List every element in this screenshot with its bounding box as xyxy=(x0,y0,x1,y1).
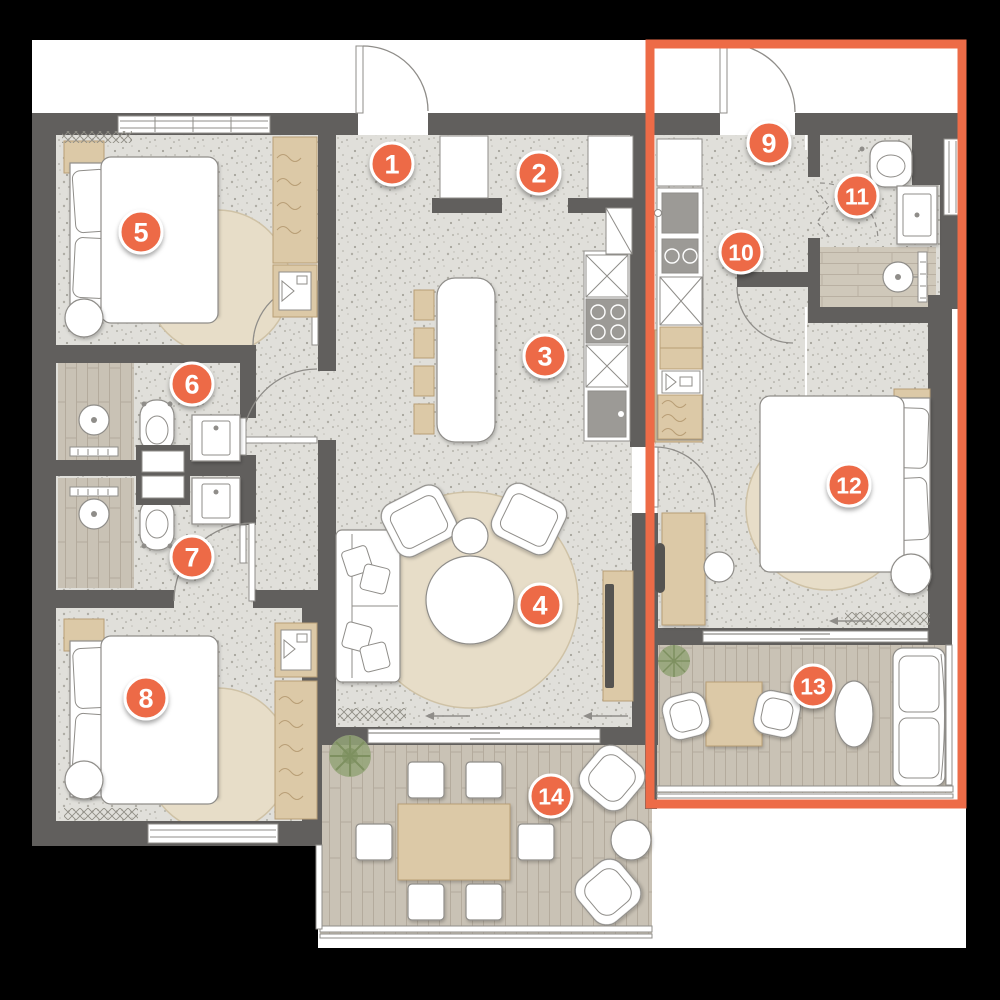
faucet-dot xyxy=(214,426,219,431)
dining-chair xyxy=(518,824,554,860)
lounge-sofa-13 xyxy=(893,648,945,786)
room-marker-4[interactable]: 4 xyxy=(519,584,561,626)
radiator-hatch xyxy=(845,612,930,625)
dining-chair xyxy=(466,762,502,798)
desk-bedroom-12 xyxy=(662,513,705,625)
wall xyxy=(432,198,502,213)
door-leaf-bath-7 xyxy=(240,525,246,563)
dining-chair xyxy=(408,762,444,798)
door-leaf-bath-6 xyxy=(240,418,246,455)
toilet-dot xyxy=(142,402,147,407)
vanity-bath-7 xyxy=(192,478,240,524)
shower-head-dot xyxy=(91,417,97,423)
room-marker-11[interactable]: 11 xyxy=(836,175,878,217)
door-leaf-corridor xyxy=(243,437,317,443)
wall xyxy=(648,113,720,135)
door-leaf-bedroom-8 xyxy=(249,523,255,601)
toilet-dot xyxy=(142,544,147,549)
floor-plan-screenshot: 1234567891011121314 xyxy=(0,0,1000,1000)
shower-drain xyxy=(918,252,927,302)
side-table-balcony-14 xyxy=(611,820,651,860)
dining-chair xyxy=(408,884,444,920)
wall xyxy=(188,460,256,476)
marker-number: 13 xyxy=(800,673,826,699)
marker-number: 7 xyxy=(184,543,199,573)
sliding-door-bedroom-12 xyxy=(703,631,928,642)
fridge xyxy=(657,139,702,186)
toilet-bath-7 xyxy=(140,498,174,550)
side-table-living xyxy=(452,518,488,554)
door-leaf-entry-9 xyxy=(720,46,727,113)
wall xyxy=(428,113,650,135)
faucet-dot xyxy=(915,213,920,218)
railing-balcony-13 xyxy=(657,794,953,798)
stool xyxy=(414,290,434,320)
sofa-pillow xyxy=(359,641,391,673)
dresser-icon xyxy=(297,276,307,284)
bistro-table-13 xyxy=(706,682,762,746)
wall xyxy=(253,590,318,608)
sink-unit xyxy=(662,193,698,233)
room-marker-2[interactable]: 2 xyxy=(518,152,560,194)
radiator-hatch xyxy=(338,708,406,721)
room-marker-3[interactable]: 3 xyxy=(524,335,566,377)
stool xyxy=(414,366,434,396)
ottoman-balcony-13 xyxy=(835,681,873,747)
side-table-bedroom-12 xyxy=(891,554,931,594)
floor-plan-canvas: 1234567891011121314 xyxy=(0,0,1000,1000)
window-bedroom-8 xyxy=(148,824,278,843)
wall xyxy=(928,295,952,645)
dining-table-14 xyxy=(398,804,510,880)
marker-number: 4 xyxy=(532,591,547,621)
marker-number: 12 xyxy=(836,472,862,498)
marker-number: 11 xyxy=(845,183,870,209)
side-table-bedroom-8 xyxy=(65,761,103,799)
railing-balcony-14 xyxy=(320,926,652,932)
shower-drain xyxy=(70,487,118,496)
oven-handle xyxy=(618,411,624,417)
marker-number: 1 xyxy=(384,150,399,180)
railing-balcony-13 xyxy=(657,786,953,792)
toilet-dot xyxy=(168,402,173,407)
wall xyxy=(56,460,136,476)
wardrobe-bedroom-8 xyxy=(275,681,317,819)
room-marker-6[interactable]: 6 xyxy=(171,363,213,405)
marker-number: 5 xyxy=(133,218,148,248)
marker-number: 10 xyxy=(728,239,754,265)
tv-icon xyxy=(605,584,614,688)
room-marker-1[interactable]: 1 xyxy=(371,143,413,185)
side-table-bedroom-5 xyxy=(65,299,103,337)
room-marker-10[interactable]: 10 xyxy=(720,231,762,273)
marker-number: 9 xyxy=(761,129,776,159)
shower-head-dot xyxy=(895,274,901,280)
marker-number: 14 xyxy=(538,783,564,809)
wall xyxy=(56,590,174,608)
desk-chair-12 xyxy=(655,543,665,593)
door-leaf-entry-1 xyxy=(356,46,363,113)
sliding-door-living xyxy=(368,729,600,743)
toilet-dot xyxy=(860,147,865,152)
kitchen-island xyxy=(437,278,495,442)
railing-balcony-13-side xyxy=(946,645,952,785)
radiator-hatch xyxy=(62,131,132,143)
room-marker-9[interactable]: 9 xyxy=(748,122,790,164)
wall xyxy=(737,272,812,287)
wall xyxy=(808,307,940,323)
hall-closet xyxy=(440,136,488,198)
sofa-pillow xyxy=(359,563,391,595)
faucet xyxy=(655,210,662,217)
coffee-table-living xyxy=(426,556,514,644)
toilet-bath-11 xyxy=(870,141,912,187)
railing-balcony-14 xyxy=(320,934,652,938)
room-marker-13[interactable]: 13 xyxy=(792,665,834,707)
niche-shelf xyxy=(142,451,184,472)
room-marker-7[interactable]: 7 xyxy=(171,536,213,578)
wall xyxy=(240,363,256,418)
dining-chair xyxy=(356,824,392,860)
dresser-icon xyxy=(297,634,307,642)
railing-balcony-14-side xyxy=(316,845,322,929)
wall xyxy=(912,135,940,185)
plant-core xyxy=(342,748,358,764)
wall xyxy=(56,345,256,363)
shower-drain xyxy=(70,447,118,456)
dining-chair xyxy=(466,884,502,920)
wall xyxy=(32,113,56,846)
marker-number: 3 xyxy=(537,342,552,372)
wall xyxy=(795,113,966,135)
marker-number: 2 xyxy=(531,159,546,189)
shower-head-dot xyxy=(91,511,97,517)
room-marker-8[interactable]: 8 xyxy=(125,677,167,719)
faucet-dot xyxy=(214,490,219,495)
room-marker-5[interactable]: 5 xyxy=(120,211,162,253)
room-marker-14[interactable]: 14 xyxy=(530,775,572,817)
window-bedroom-5 xyxy=(118,116,270,133)
wall xyxy=(808,132,820,177)
niche-shelf xyxy=(142,476,184,498)
room-marker-12[interactable]: 12 xyxy=(828,464,870,506)
desk-side-table-12 xyxy=(704,552,734,582)
wall xyxy=(318,135,336,371)
cooktop-2-burner xyxy=(662,239,698,273)
appliance-icon xyxy=(680,377,692,386)
radiator-hatch xyxy=(64,808,138,820)
marker-number: 6 xyxy=(184,370,199,400)
scene-layer xyxy=(32,40,966,948)
duvet-bed-8 xyxy=(101,636,218,804)
vanity-bath-6 xyxy=(192,415,240,461)
hall-closet xyxy=(588,136,633,198)
stool xyxy=(414,404,434,434)
marker-number: 8 xyxy=(138,684,153,714)
stool xyxy=(414,328,434,358)
